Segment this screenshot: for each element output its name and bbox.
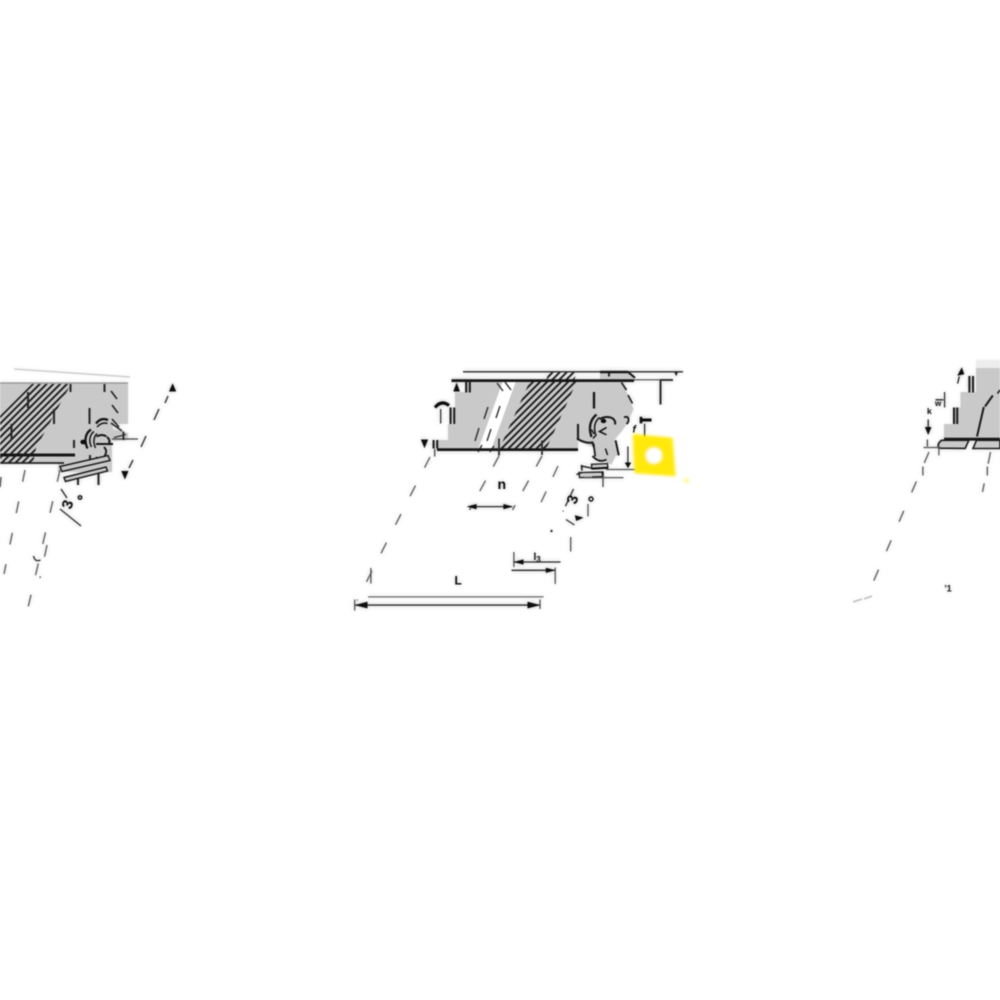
svg-text:'1: '1 bbox=[945, 584, 952, 594]
svg-text:n: n bbox=[498, 476, 507, 492]
svg-text:3: 3 bbox=[59, 498, 78, 511]
svg-text:w: w bbox=[934, 399, 942, 408]
svg-text:f: f bbox=[633, 425, 638, 436]
svg-text:L: L bbox=[455, 574, 462, 588]
svg-text:k: k bbox=[927, 406, 932, 416]
